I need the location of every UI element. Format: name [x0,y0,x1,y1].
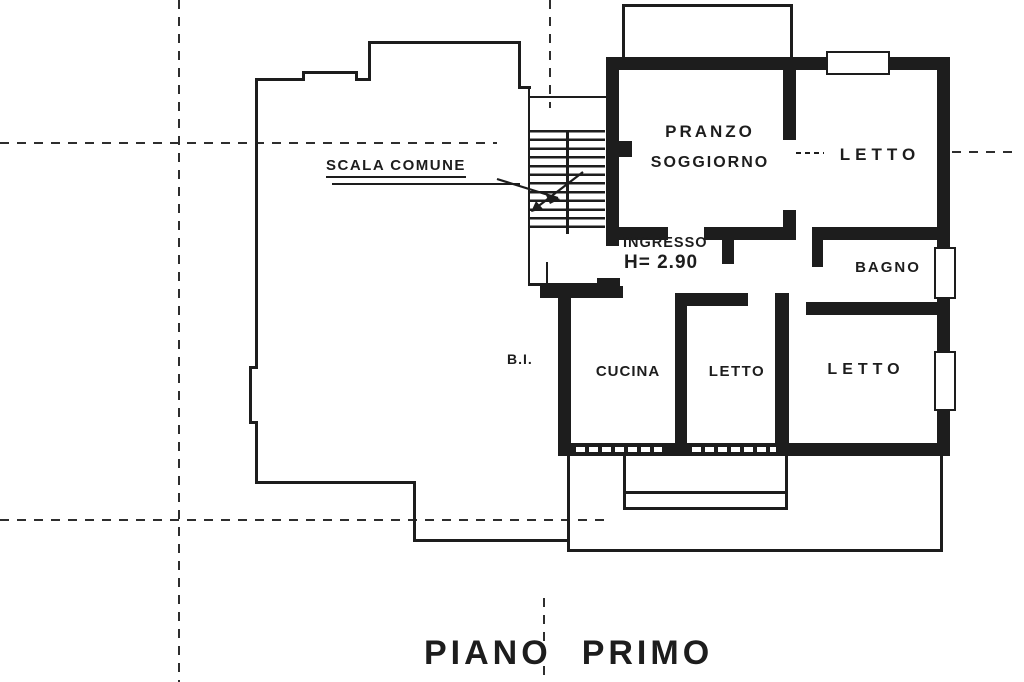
window-letto-balcony [692,447,776,452]
label-height-note: H= 2.90 [624,252,698,274]
building-outline [255,481,415,484]
plan-title: PIANOPRIMO [424,634,713,673]
grid-line-vertical-top [549,0,551,108]
building-outline [413,481,416,541]
building-outline [255,424,258,483]
plan-title-word2: PRIMO [582,634,713,672]
label-room-letto-right: LETTO [812,361,920,379]
balcony-lower-rail [626,491,785,494]
door-opening-dashes [796,152,824,154]
wall-left-upper [606,57,619,246]
wall-mid-c [812,227,950,240]
building-outline [355,78,371,81]
window-bagno [934,247,956,299]
leader-arrow-overlay [0,0,1024,682]
window-letto-right [934,351,956,411]
label-room-letto-top: LETTO [824,145,936,165]
building-outline [368,41,518,44]
wall-cucina-top [540,286,623,298]
label-room-pranzo: PRANZO [635,122,785,142]
label-room-soggiorno: SOGGIORNO [628,154,792,172]
label-ingresso: INGRESSO [623,235,708,251]
grid-line-horizontal-upper [0,142,497,144]
balcony-lower-edge [785,456,788,510]
staircase-stringer [566,130,569,234]
building-outline [518,41,521,89]
staircase-edge [528,96,606,98]
building-outline [413,539,569,542]
plan-title-word1: PIANO [424,634,552,672]
balcony-lower-edge [623,456,626,510]
balcony-lower-edge [623,507,788,510]
label-scala-comune-underline [332,183,520,185]
wall-top [606,57,950,70]
label-scala-comune: SCALA COMUNE [326,157,466,178]
grid-line-horizontal-lower [0,519,612,521]
wall-mid-b-jamb [722,240,734,264]
building-outline [302,71,358,74]
window-letto-top [826,51,890,75]
floor-plan-canvas: SCALA COMUNE PRANZO SOGGIORNO LETTO INGR… [0,0,1024,682]
label-room-cucina: CUCINA [578,363,678,380]
building-outline [368,41,371,81]
building-outline [255,78,258,368]
grid-line-horizontal-upper-right [952,151,1012,153]
building-outline [249,366,252,424]
wall-cucina-left [558,297,571,456]
wall-over-letto-mid [675,293,748,306]
window-cucina-balcony [576,447,662,452]
building-outline [255,78,305,81]
wall-mid-b [704,227,787,240]
grid-line-vertical-left [178,0,180,682]
wall-bagno-bottom [806,302,950,315]
label-room-bagno: BAGNO [842,259,934,276]
balcony-top [622,4,793,57]
wall-bagno-left [812,240,823,267]
label-room-letto-middle: LETTO [692,363,782,380]
wall-divider-cucina-letto [675,306,687,456]
label-bi: B.I. [507,351,533,367]
